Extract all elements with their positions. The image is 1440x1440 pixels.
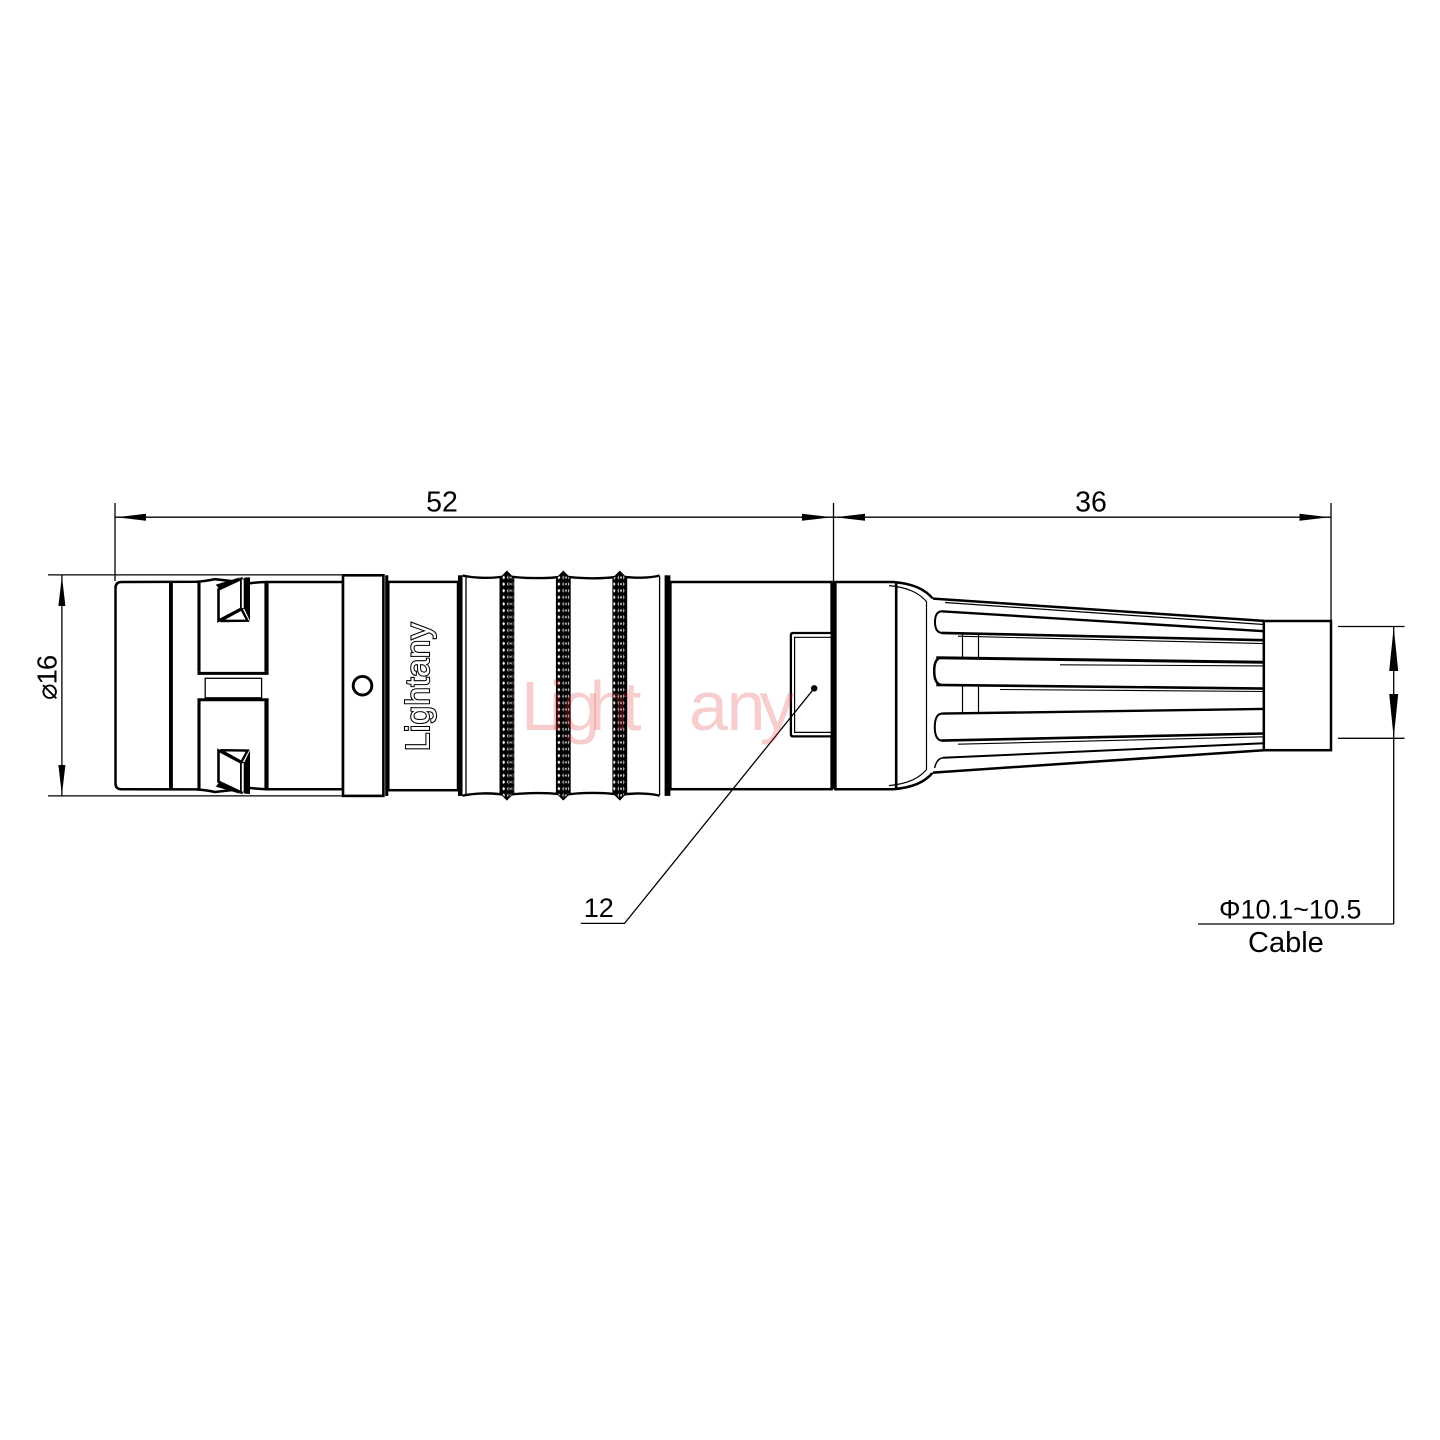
svg-text:Lightany: Lightany — [399, 622, 436, 751]
svg-text:Cable: Cable — [1248, 927, 1324, 959]
svg-text:12: 12 — [584, 893, 614, 923]
svg-text:Φ10.1~10.5: Φ10.1~10.5 — [1219, 895, 1361, 925]
svg-text:52: 52 — [426, 487, 458, 519]
svg-text:36: 36 — [1075, 487, 1107, 519]
svg-text:⌀16: ⌀16 — [32, 655, 63, 700]
